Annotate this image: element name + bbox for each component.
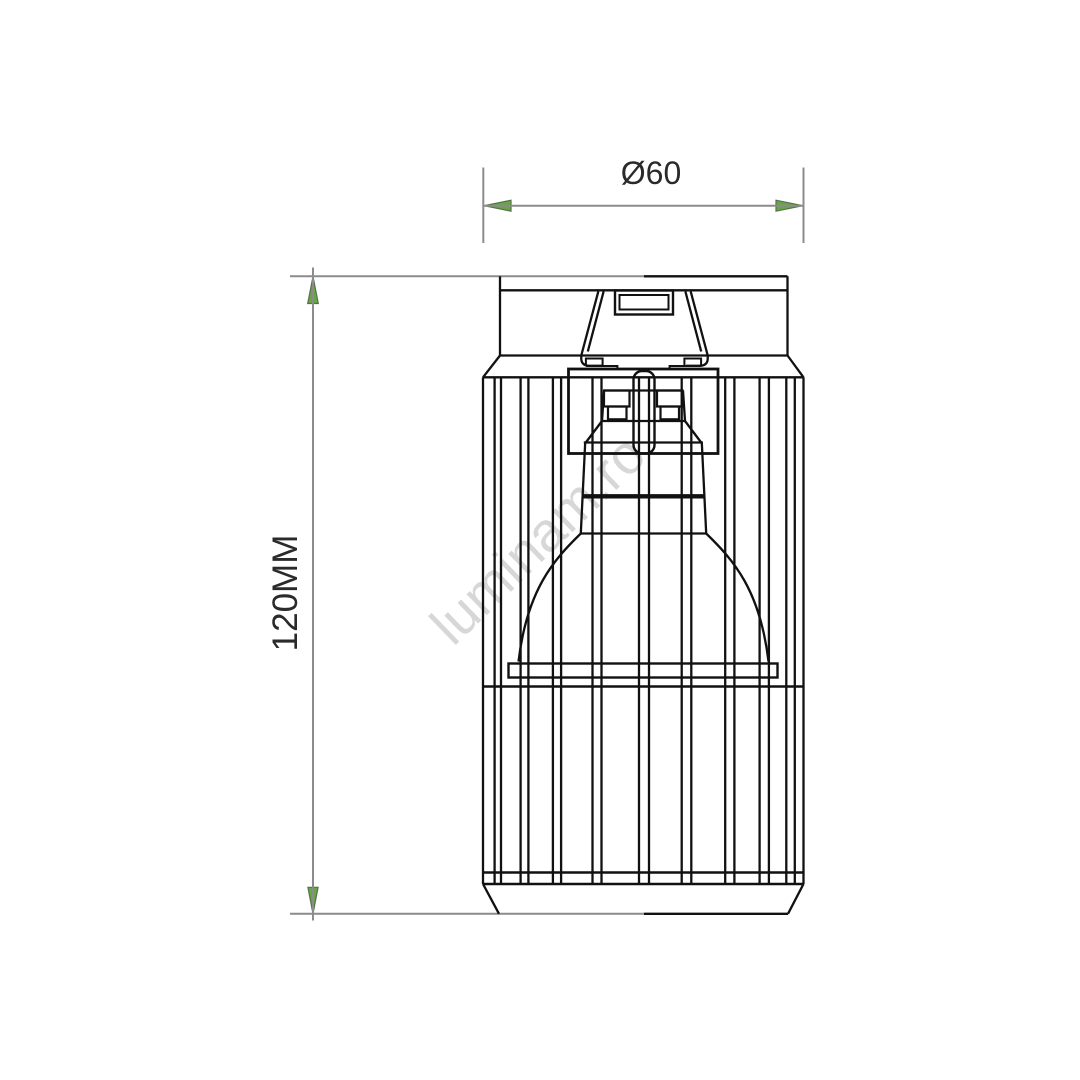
svg-text:120MM: 120MM — [266, 535, 305, 652]
svg-text:luminam.ro: luminam.ro — [418, 423, 657, 657]
svg-text:Ø60: Ø60 — [621, 155, 681, 191]
